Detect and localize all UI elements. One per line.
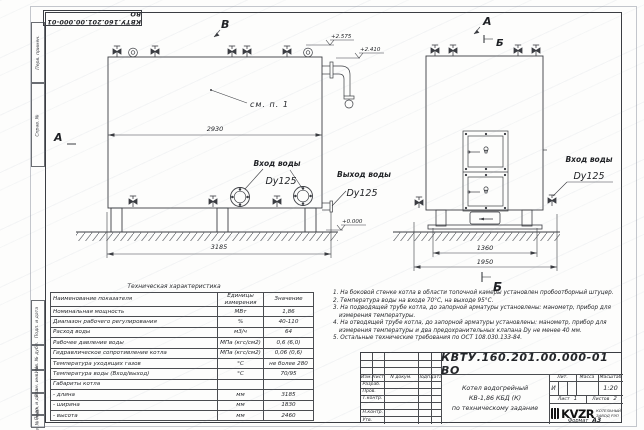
note-line: 4. На отводящей трубе котла, до запорной…	[333, 320, 620, 335]
tb-sheets-cell: Листов 2	[586, 395, 623, 403]
table-cell: Гидравлическое сопротивление котла	[51, 348, 218, 358]
table-cell: мм	[218, 410, 264, 420]
outlet-duct	[322, 62, 354, 108]
tb-row-nkontr: Н.контр.	[361, 409, 386, 416]
outlet-label: Выход воды	[337, 170, 391, 179]
table-cell: мм	[218, 390, 264, 400]
product-name-line: Котел водогрейный	[462, 384, 528, 394]
table-row: Гидравлическое сопротивление котлаМПа (к…	[51, 348, 314, 358]
format-value: А3	[592, 417, 601, 424]
table-cell	[218, 379, 264, 389]
tb-row-tkontr: Т.контр.	[361, 395, 386, 402]
table-cell: м3/ч	[218, 327, 264, 337]
company-emblem-icon	[551, 408, 559, 419]
table-cell: %	[218, 317, 264, 327]
table-cell: 64	[264, 327, 314, 337]
table-row: Расход водым3/ч64	[51, 327, 314, 337]
table-cell	[264, 379, 314, 389]
table-cell: 1830	[264, 400, 314, 410]
tb-header-izm: Изм.	[361, 374, 372, 381]
water-inlet-flange	[294, 187, 313, 206]
elevation-2410: +2.410	[360, 47, 381, 53]
tb-header-data: Дата	[431, 374, 441, 381]
furnace-doors	[463, 131, 508, 211]
inlet-dn-right-view: Dy125	[573, 171, 604, 182]
table-cell: 70/95	[264, 369, 314, 379]
table-row: - длинамм3185	[51, 390, 314, 400]
table-cell: 0,06 (0,6)	[264, 348, 314, 358]
view-label-a-top: А	[482, 15, 492, 28]
col-header-units: Единицы измерения	[218, 293, 264, 307]
sheets-value: 2	[613, 396, 617, 402]
tb-header-ndoc: N докум.	[384, 374, 418, 381]
drawing-sheet: Перв. примен. Справ. № Подп. и дата Инв.…	[0, 0, 644, 430]
boiler-front-view	[393, 45, 560, 241]
table-cell: Диапазон рабочего регулирования	[51, 317, 218, 327]
inlet-dn-left-view: Dy125	[265, 176, 296, 187]
note-line: 1. На боковой стенке котла в области топ…	[333, 290, 620, 298]
table-row: Температура уходящих газов°Сне более 280	[51, 358, 314, 368]
table-row: Температура воды (Вход/выход)°С70/95	[51, 369, 314, 379]
inlet-label-left-view: Вход воды	[253, 159, 300, 168]
table-cell: Температура воды (Вход/выход)	[51, 369, 218, 379]
table-cell: 40-110	[264, 317, 314, 327]
note-line: 5. Остальные технические требования по О…	[333, 335, 620, 343]
note-line: 2. Температура воды на входе 70°С, на вы…	[333, 298, 620, 306]
tb-row-utv: Утв.	[361, 416, 386, 424]
note-line: 3. На подводящей трубе котла, до запорно…	[333, 305, 620, 320]
tb-sheet-cell: Лист 1	[549, 395, 586, 403]
table-row: - ширинамм1830	[51, 400, 314, 410]
side-view-annotations	[67, 30, 384, 258]
tb-row-razrab: Разраб.	[361, 381, 386, 388]
sheet-label: Лист	[558, 397, 570, 402]
table-row: Номинальная мощностьМВт1,86	[51, 307, 314, 317]
dim-2930: 2930	[207, 125, 224, 133]
product-name-line: КВ-1,86 КБД (К)	[469, 394, 521, 404]
tb-row-prov: Пров.	[361, 388, 386, 395]
tb-row-blank	[361, 402, 386, 409]
col-header-name: Наименование показателя	[51, 293, 218, 307]
tb-mass-header: Масса	[576, 374, 598, 381]
sheet-value: 1	[574, 396, 578, 402]
table-cell: - ширина	[51, 400, 218, 410]
sheets-label: Листов	[592, 397, 609, 402]
table-cell: Температура уходящих газов	[51, 358, 218, 368]
table-row: - высотамм2460	[51, 410, 314, 420]
table-cell: °С	[218, 369, 264, 379]
table-row: Рабочее давление водыМПа (кгс/см2)0,6 (6…	[51, 338, 314, 348]
dim-3185: 3185	[211, 243, 228, 251]
outlet-stub	[322, 201, 333, 212]
tb-header-podp: Подп.	[418, 374, 431, 381]
tb-lit-header: Лит.	[549, 374, 576, 381]
table-cell: °С	[218, 358, 264, 368]
spec-table: Наименование показателя Единицы измерени…	[50, 292, 314, 421]
table-cell: - высота	[51, 410, 218, 420]
side-inlet-valve	[415, 197, 423, 208]
technical-notes: 1. На боковой стенке котла в области топ…	[333, 290, 620, 343]
format-label: Формат А3	[568, 417, 622, 424]
elevation-0000: +0.000	[342, 219, 363, 225]
table-cell: 0,6 (6,0)	[264, 338, 314, 348]
water-inlet-flange	[231, 188, 250, 207]
title-block-doc-number: КВТУ.160.201.00.000-01 ВО	[441, 353, 623, 374]
inlet-label-right-view: Вход воды	[565, 155, 612, 164]
table-cell: МПа (кгс/см2)	[218, 348, 264, 358]
tb-lit-value: И	[549, 381, 558, 395]
boiler-body-front	[426, 56, 543, 210]
title-block-name: Котел водогрейный КВ-1,86 КБД (К) по тех…	[441, 374, 549, 424]
format-word: Формат	[568, 418, 588, 424]
col-header-value: Значение	[264, 293, 314, 307]
table-header-row: Наименование показателя Единицы измерени…	[51, 293, 314, 307]
dim-1360: 1360	[477, 244, 494, 252]
view-label-b-top: Б	[496, 38, 504, 49]
spec-table-title: Техническая характеристика	[50, 283, 298, 290]
dim-1950: 1950	[477, 258, 494, 266]
boiler-base	[428, 210, 542, 229]
table-cell: не более 280	[264, 358, 314, 368]
tb-header-list: Лист	[372, 374, 384, 381]
outlet-dn: Dy125	[346, 188, 377, 199]
view-label-v: В	[221, 18, 229, 31]
table-row: Диапазон рабочего регулирования%40-110	[51, 317, 314, 327]
product-name-line: по техническому задание	[452, 404, 538, 414]
table-cell: МПа (кгс/см2)	[218, 338, 264, 348]
table-cell: - длина	[51, 390, 218, 400]
table-cell: Рабочее давление воды	[51, 338, 218, 348]
elevation-2575: +2.575	[331, 34, 352, 40]
table-cell: мм	[218, 400, 264, 410]
title-block: КВТУ.160.201.00.000-01 ВО Изм. Лист N до…	[360, 352, 622, 423]
table-cell: Габариты котла	[51, 379, 218, 389]
side-inlet-valve	[548, 195, 556, 206]
table-cell: Расход воды	[51, 327, 218, 337]
table-cell: МВт	[218, 307, 264, 317]
tb-scale-header: Масштаб	[598, 374, 623, 381]
boiler-side-view	[76, 46, 354, 241]
tb-scale-value: 1:20	[598, 381, 623, 395]
table-cell: 2460	[264, 410, 314, 420]
technical-characteristics: Техническая характеристика Наименование …	[50, 283, 298, 421]
see-note-label: см. п. 1	[250, 100, 289, 109]
section-label-a-left: А	[53, 131, 63, 144]
table-cell: 3185	[264, 390, 314, 400]
table-row: Габариты котла	[51, 379, 314, 389]
table-cell: Номинальная мощность	[51, 307, 218, 317]
table-cell: 1,86	[264, 307, 314, 317]
